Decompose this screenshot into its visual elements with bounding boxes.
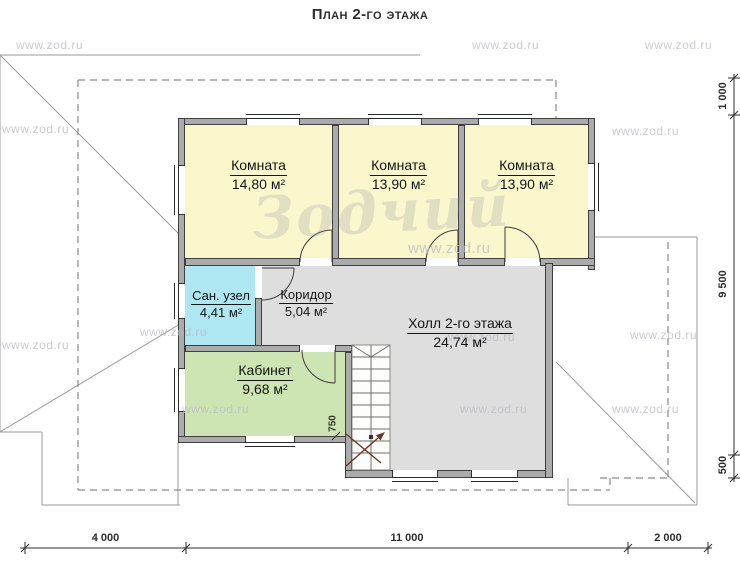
- room-name: Комната: [230, 157, 287, 176]
- detail-linework: [0, 0, 740, 562]
- watermark: www.zod.ru: [2, 338, 69, 352]
- watermark: www.zod.ru: [630, 328, 697, 342]
- floor-plan-page: www.zod.ru www.zod.ru www.zod.ru www.zod…: [0, 0, 740, 562]
- watermark: www.zod.ru: [612, 402, 679, 416]
- dim-right-top: 1 000: [717, 66, 729, 126]
- room-name: Холл 2-го этажа: [407, 315, 513, 334]
- watermark: www.zod.ru: [612, 124, 679, 138]
- dimension-lines: [20, 74, 740, 554]
- room-area: 9,68 м²: [190, 381, 340, 399]
- watermark: www.zod.ru: [645, 38, 712, 52]
- dim-right-bottom: 500: [717, 435, 729, 495]
- watermark: www.zod.ru: [182, 402, 249, 416]
- watermark: www.zod.ru: [460, 402, 527, 416]
- room-label-corridor: Коридор 5,04 м²: [260, 287, 352, 321]
- room-name: Комната: [370, 157, 427, 176]
- watermark: www.zod.ru: [472, 38, 539, 52]
- dim-stair-width: 750: [328, 394, 339, 454]
- room-area: 4,41 м²: [184, 305, 258, 321]
- room-area: 5,04 м²: [260, 304, 352, 320]
- room-area: 13,90 м²: [339, 176, 458, 194]
- room-area: 13,90 м²: [465, 176, 588, 194]
- watermark: www.zod.ru: [2, 122, 69, 136]
- room-name: Кабинет: [237, 362, 292, 381]
- page-title: План 2-го этажа: [0, 6, 740, 23]
- staircase: [352, 345, 390, 470]
- dim-bottom-center: 11 000: [186, 532, 628, 544]
- dim-right-middle: 9 500: [717, 254, 729, 314]
- dim-bottom-left: 4 000: [25, 532, 186, 544]
- room-area: 24,74 м²: [370, 334, 550, 352]
- room-label-bathroom: Сан. узел 4,41 м²: [184, 288, 258, 322]
- room-label-bedroom-2: Комната 13,90 м²: [339, 157, 458, 193]
- room-area: 14,80 м²: [185, 176, 332, 194]
- room-name: Сан. узел: [191, 288, 251, 305]
- watermark: www.zod.ru: [16, 38, 83, 52]
- room-label-hall: Холл 2-го этажа 24,74 м²: [370, 315, 550, 351]
- watermark: www.zod.ru: [140, 325, 207, 339]
- room-name: Коридор: [279, 287, 332, 304]
- room-name: Комната: [498, 157, 555, 176]
- room-label-office: Кабинет 9,68 м²: [190, 362, 340, 398]
- room-label-bedroom-1: Комната 14,80 м²: [185, 157, 332, 193]
- room-label-bedroom-3: Комната 13,90 м²: [465, 157, 588, 193]
- dim-bottom-right: 2 000: [628, 532, 708, 544]
